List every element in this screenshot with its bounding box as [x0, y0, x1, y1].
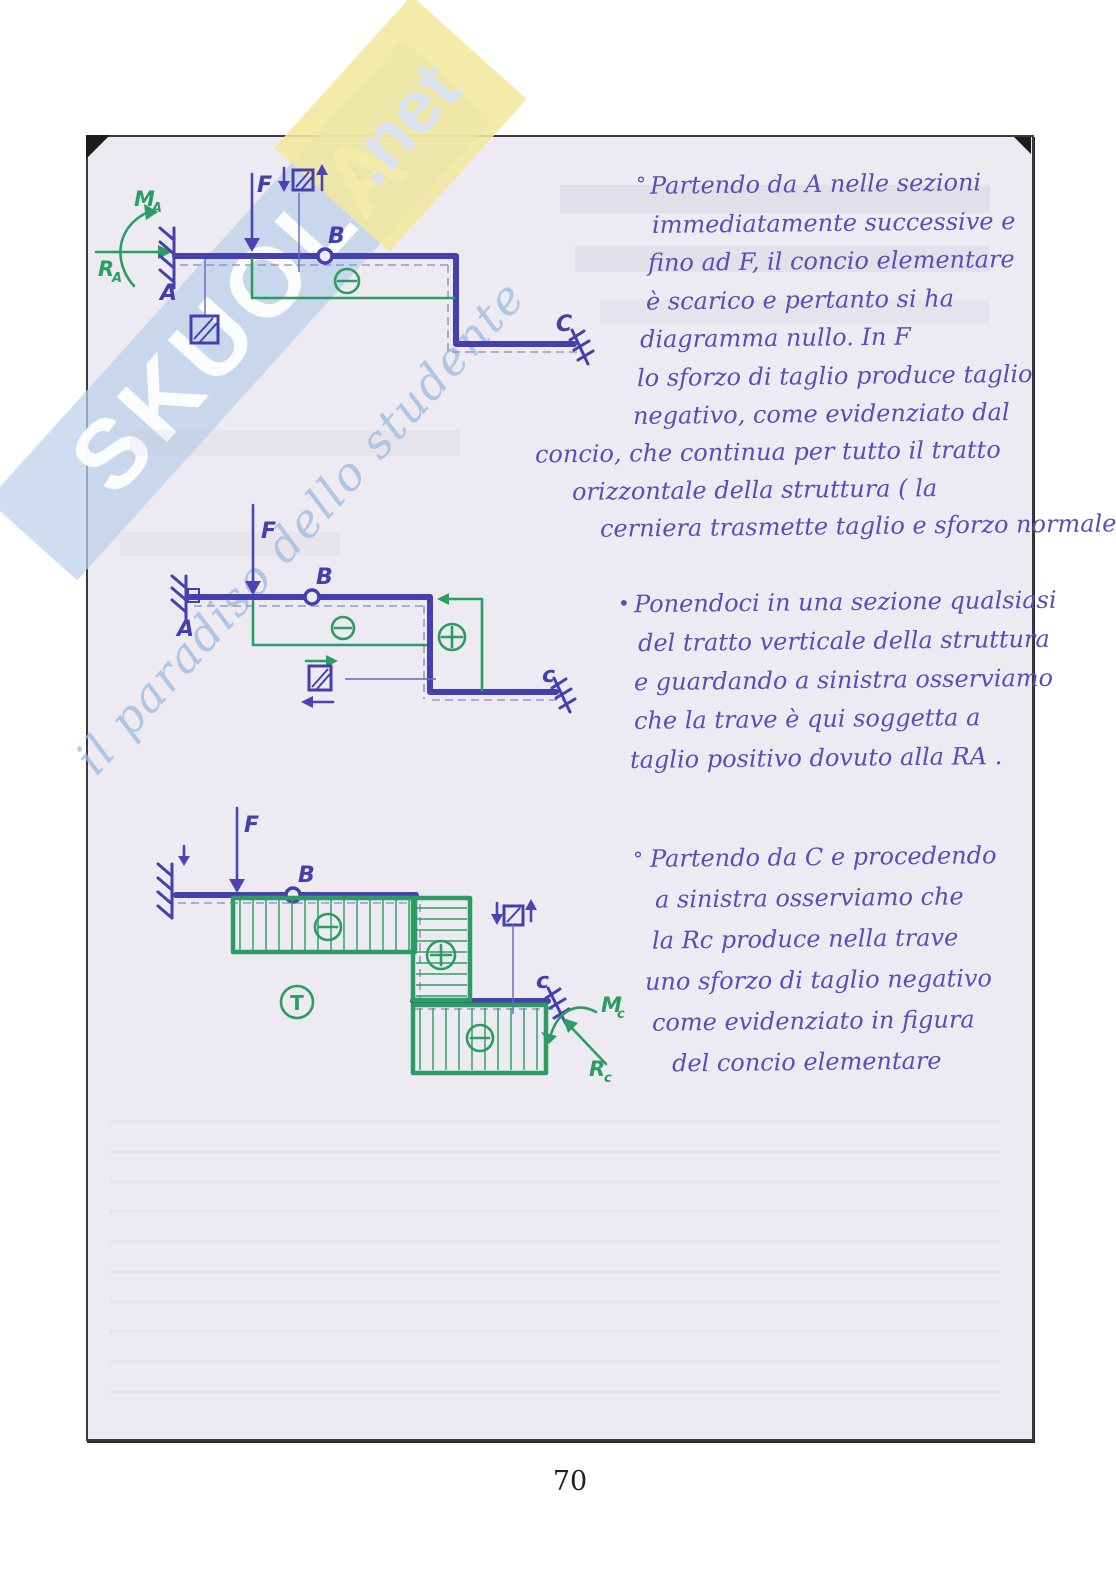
force-f-arrow: F [244, 173, 272, 252]
shear-diagram-label: T [290, 991, 304, 1015]
point-b-label: B [298, 863, 315, 888]
diagram-shear-vertical-part: F A B c [140, 498, 610, 733]
svg-text:c: c [617, 1007, 625, 1022]
note-line: orizzontale della struttura ( la [572, 474, 937, 506]
dashed-axis [194, 606, 564, 700]
note-line: che la trave è qui soggetta a [634, 703, 981, 735]
note-line: fino ad F, il concio elementare [648, 245, 1015, 277]
positive-shear-line [437, 593, 482, 690]
positive-shear-icon [427, 941, 455, 969]
elementary-element-icon [301, 655, 436, 708]
negative-shear-region-bottom [413, 1005, 546, 1073]
note-line: diagramma nullo. In F [640, 323, 911, 354]
page-corner-fold-right [1014, 137, 1031, 154]
note-line: lo sforzo di taglio produce taglio [637, 360, 1033, 392]
note-line: Ponendoci in una sezione qualsiasi [634, 586, 1057, 618]
note-line: e guardando a sinistra osserviamo [634, 664, 1053, 696]
bullet: ° [633, 847, 643, 871]
reaction-rc-label: R [589, 1057, 605, 1081]
elementary-element-icon [491, 899, 537, 1014]
negative-shear-icon [332, 617, 354, 639]
force-f-arrow: F [245, 505, 276, 595]
note-line: immediatamente successive e [652, 207, 1016, 239]
note-line: come evidenziato in figura [652, 1005, 975, 1036]
note-line: Partendo da C e procedendo [650, 841, 997, 873]
point-a-label: A [158, 281, 177, 306]
bullet: ° [636, 172, 646, 196]
bullet: • [618, 591, 630, 615]
note-line: del tratto verticale della struttura [638, 625, 1050, 657]
positive-shear-icon [439, 624, 465, 650]
page-number: 70 [540, 1466, 600, 1497]
shear-diagram-symbol: T [281, 986, 313, 1018]
scanned-notes-page: SKUOLA .net il paradiso dello studente M… [0, 0, 1116, 1579]
point-c-label: c [542, 663, 555, 688]
reaction-rc-arrow: R c [563, 1018, 612, 1086]
beam [175, 249, 574, 344]
hatched-element-below-a [191, 259, 218, 343]
point-c-label: c [536, 969, 549, 994]
note-line: concio, che continua per tutto il tratto [535, 436, 1001, 469]
point-b-label: B [328, 224, 345, 249]
positive-shear-region [413, 898, 470, 1000]
moment-ma-arrow: M A [120, 187, 162, 286]
note-line: uno sforzo di taglio negativo [645, 964, 992, 996]
note-line: la Rc produce nella trave [652, 923, 959, 954]
diagram-complete-shear: F [130, 790, 660, 1090]
bleed-through-ruling [110, 1120, 1000, 1420]
fixed-support-a [160, 228, 174, 288]
note-line: è scarico e pertanto si ha [646, 284, 954, 315]
diagram-structure-reactions: M A R A F [88, 158, 628, 388]
force-f-label: F [261, 519, 276, 544]
negative-shear-line [253, 601, 426, 645]
note-line: del concio elementare [672, 1047, 942, 1078]
dashed-axis [180, 265, 582, 352]
force-f-arrow: F [229, 808, 259, 893]
negative-shear-icon [315, 914, 341, 940]
point-a-label: A [175, 617, 194, 642]
point-b-label: B [316, 565, 333, 590]
hinge-b [305, 590, 319, 604]
note-line: taglio positivo dovuto alla RA . [630, 742, 1003, 774]
force-f-label: F [244, 813, 259, 838]
force-f-label: F [257, 173, 272, 198]
note-line: negativo, come evidenziato dal [633, 398, 1010, 430]
fixed-support-a [158, 846, 190, 918]
svg-text:c: c [604, 1071, 612, 1086]
point-c-label: C [556, 312, 572, 337]
svg-text:A: A [111, 271, 122, 286]
reaction-ra-arrow: R A [96, 245, 172, 286]
svg-text:A: A [151, 201, 162, 216]
negative-shear-region-top [233, 898, 415, 952]
negative-shear-icon [335, 269, 359, 293]
page-corner-fold-left [86, 135, 110, 159]
negative-shear-icon [467, 1025, 493, 1051]
note-line: Partendo da A nelle sezioni [650, 168, 981, 199]
note-line: a sinistra osserviamo che [655, 882, 964, 913]
beam [190, 590, 556, 692]
note-line: cerniera trasmette taglio e sforzo norma… [600, 509, 1116, 543]
hinge-b [318, 249, 332, 263]
